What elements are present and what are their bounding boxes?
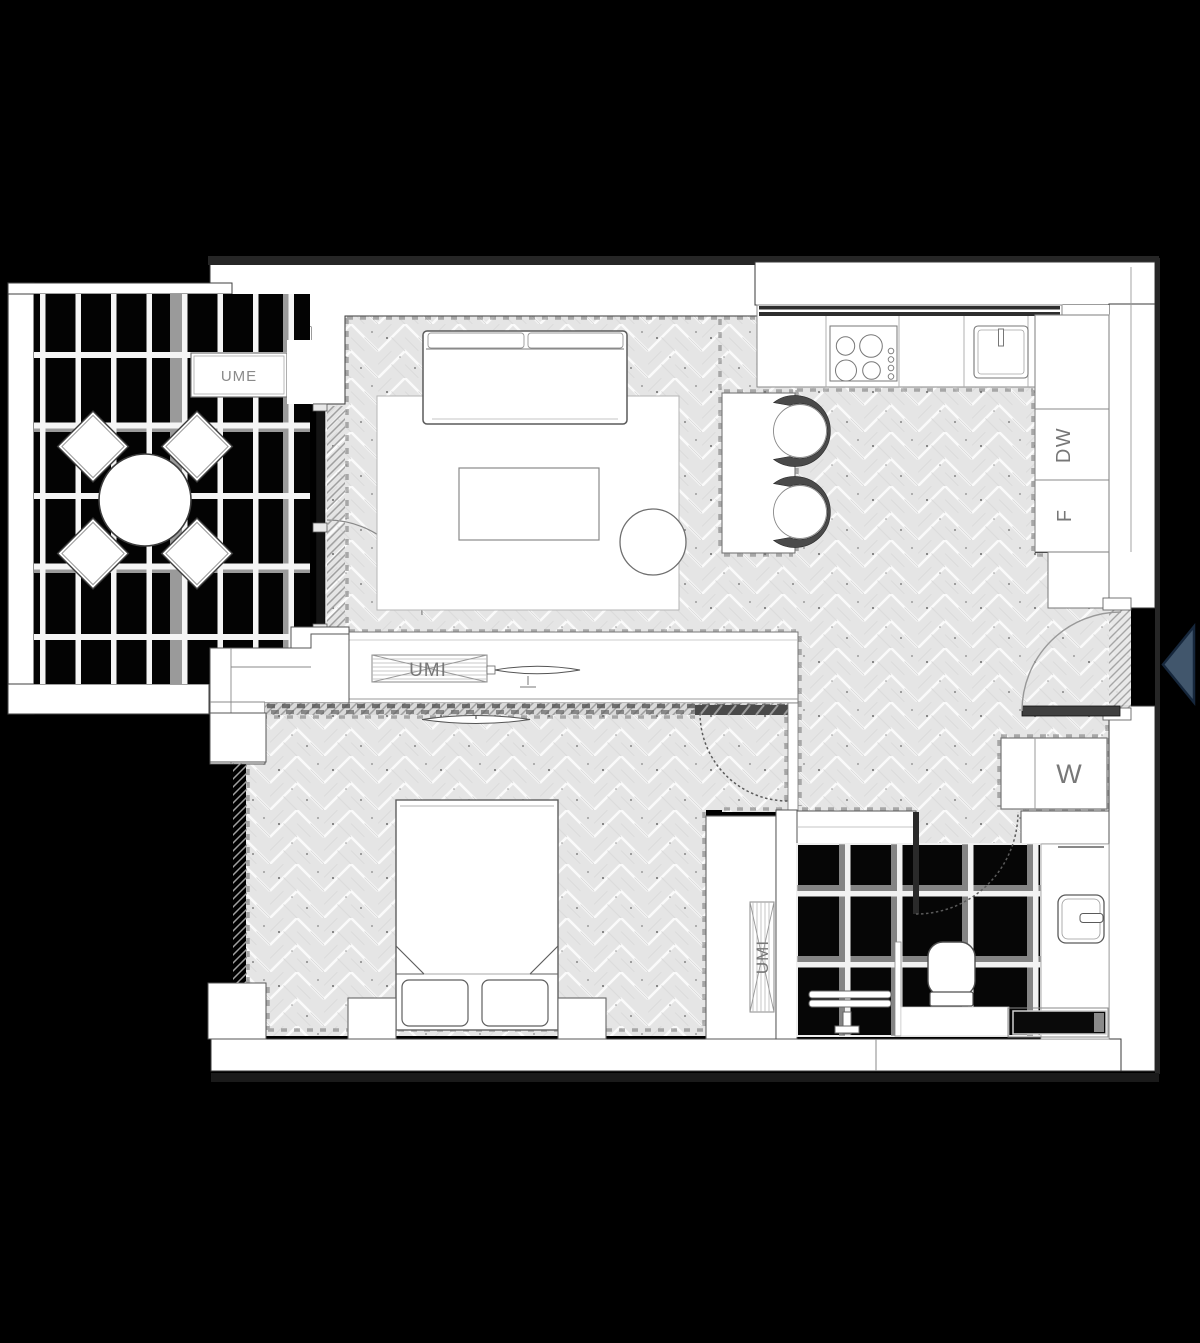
svg-text:UME: UME [221,368,257,385]
svg-text:UMI: UMI [409,660,447,681]
svg-text:F: F [1054,510,1076,522]
svg-text:DW: DW [1053,427,1075,463]
svg-text:UMI: UMI [753,940,772,974]
svg-text:W: W [1056,759,1082,789]
